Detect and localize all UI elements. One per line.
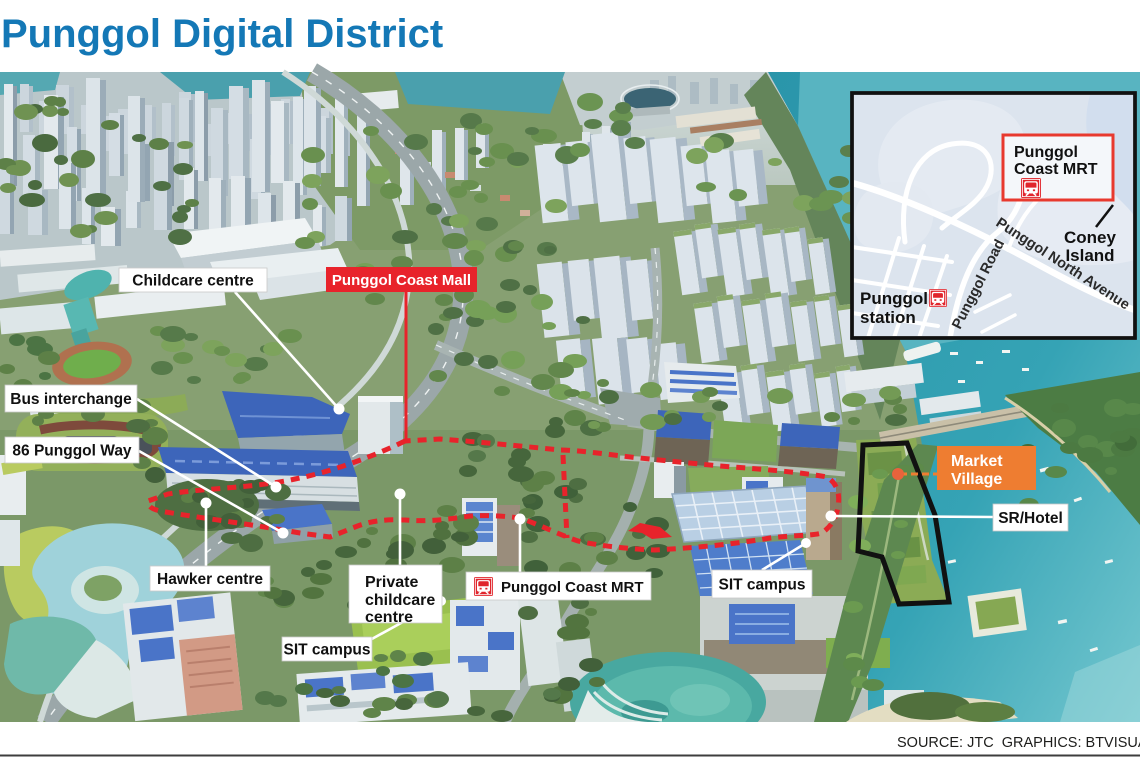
svg-text:station: station [860,308,916,327]
svg-text:Hawker centre: Hawker centre [157,571,263,588]
svg-text:Punggol Coast Mall: Punggol Coast Mall [332,272,471,289]
svg-text:Punggol: Punggol [1014,144,1078,161]
svg-text:86 Punggol Way: 86 Punggol Way [12,443,132,460]
svg-text:Punggol Digital District: Punggol Digital District [1,12,443,56]
svg-text:Private: Private [365,574,418,591]
svg-text:SIT campus: SIT campus [719,577,806,594]
svg-text:Childcare centre: Childcare centre [132,273,254,290]
svg-text:SR/Hotel: SR/Hotel [998,510,1063,527]
svg-text:Punggol Coast MRT: Punggol Coast MRT [501,579,644,596]
svg-text:Bus interchange: Bus interchange [10,391,132,408]
svg-text:centre: centre [365,609,413,626]
svg-text:Punggol: Punggol [860,289,928,308]
svg-text:Coney: Coney [1064,228,1117,247]
svg-text:childcare: childcare [365,592,435,609]
svg-text:SOURCE: JTC GRAPHICS: BTVISUA: SOURCE: JTC GRAPHICS: BTVISUAL [897,735,1140,751]
svg-text:Coast MRT: Coast MRT [1014,161,1098,178]
svg-text:Market: Market [951,453,1003,470]
svg-text:Village: Village [951,471,1002,488]
svg-text:SIT campus: SIT campus [284,642,371,659]
